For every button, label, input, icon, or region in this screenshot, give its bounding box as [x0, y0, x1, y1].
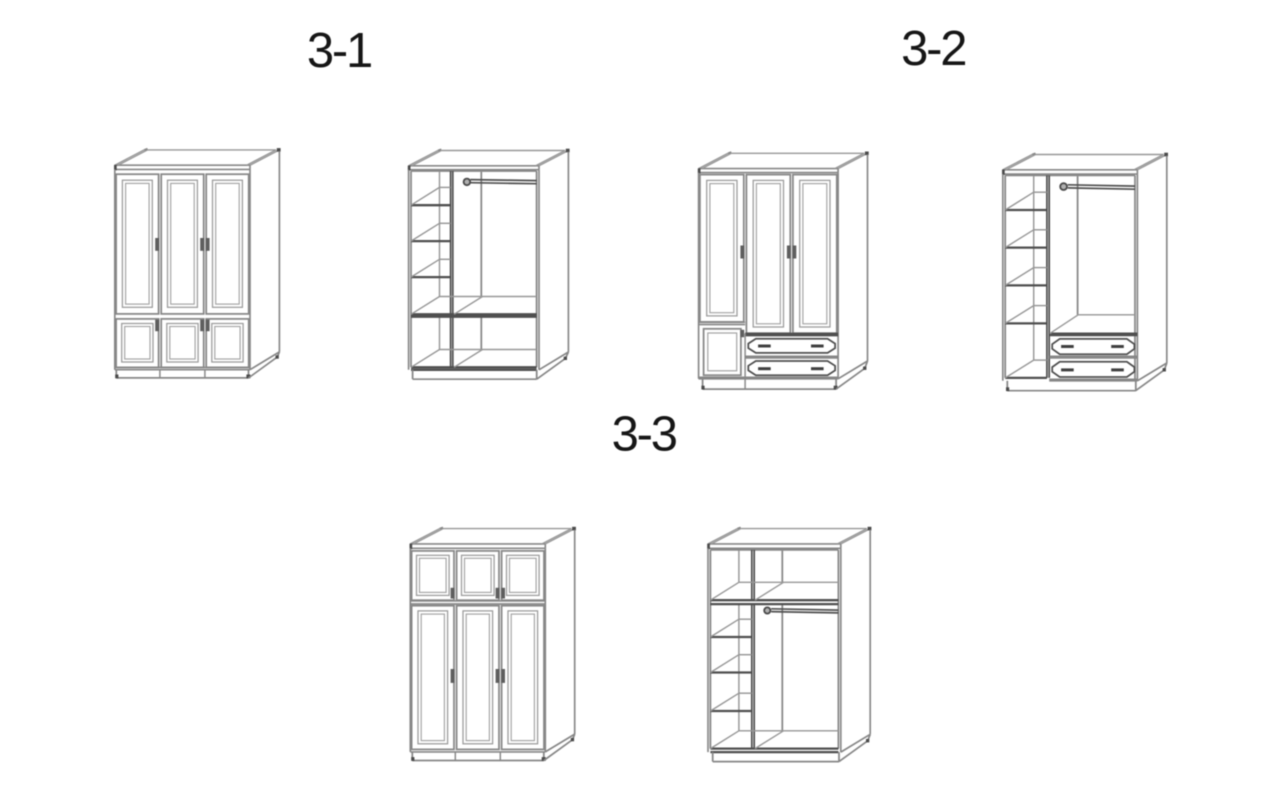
svg-text:3-2: 3-2: [901, 22, 965, 76]
svg-text:3-1: 3-1: [307, 24, 371, 78]
svg-text:3-3: 3-3: [612, 408, 677, 462]
